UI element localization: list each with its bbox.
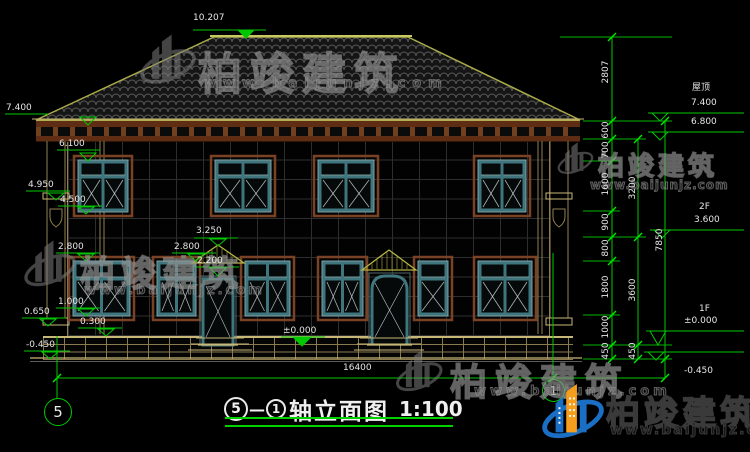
dimension-label: 2.200 — [197, 256, 223, 266]
dimension-label: 600 — [601, 121, 611, 138]
dimension-label: 3.250 — [196, 226, 222, 236]
title-dash: — — [249, 400, 265, 419]
title-axis-end: 1 — [266, 399, 286, 419]
watermark-url: www.baijunjz.com — [204, 76, 449, 91]
dimension-label: 3.600 — [694, 215, 720, 225]
dimension-label: 2807 — [601, 61, 611, 84]
axis-bubble-5: 5 — [44, 398, 72, 426]
dimension-label: 3200 — [628, 177, 638, 200]
dimension-label: 7850 — [655, 229, 665, 252]
dimension-label: ±0.000 — [283, 326, 316, 336]
dimension-label: 2.800 — [58, 242, 84, 252]
dimension-label: 900 — [601, 213, 611, 230]
dimension-label: 0.650 — [24, 307, 50, 317]
dimension-label: 3600 — [628, 279, 638, 302]
dimension-label: 10.207 — [193, 13, 225, 23]
dimension-label: 450 — [601, 342, 611, 359]
watermark-url: www.baijunjz.com — [84, 283, 265, 298]
dimension-label: 1600 — [601, 173, 611, 196]
dimension-label: 2.800 — [174, 242, 200, 252]
watermark-logo — [394, 348, 446, 398]
dimension-label: 1F — [699, 304, 710, 314]
dimension-label: -0.450 — [26, 340, 55, 350]
brand-url: www.baijunjz.com — [610, 422, 750, 438]
dimension-label: 1000 — [601, 316, 611, 339]
dimension-label: 450 — [628, 342, 638, 359]
dimension-label: 2F — [699, 202, 710, 212]
watermark-logo — [556, 140, 596, 180]
dimension-label: 4.950 — [28, 180, 54, 190]
watermark-logo — [138, 32, 200, 92]
dimension-label: -0.450 — [684, 366, 713, 376]
dimension-label: ±0.000 — [684, 316, 717, 326]
dimension-label: 屋顶 — [692, 83, 710, 93]
dimension-label: 6.800 — [691, 117, 717, 127]
cad-elevation-drawing: 柏竣建筑 www.baijunjz.com 柏竣建筑 www.baijunjz.… — [0, 0, 750, 452]
dimension-label: 7.400 — [6, 103, 32, 113]
dimension-label: 700 — [601, 141, 611, 158]
watermark-brand: 柏竣建筑 — [198, 38, 406, 102]
dimension-label: 1.000 — [58, 297, 84, 307]
title-underline — [225, 417, 453, 427]
dimension-label: 16400 — [343, 363, 372, 373]
dimension-label: 0.300 — [80, 317, 106, 327]
dimension-label: 800 — [601, 239, 611, 256]
dimension-label: 7.400 — [691, 98, 717, 108]
dimension-label: 1800 — [601, 276, 611, 299]
dimension-label: 4.500 — [60, 195, 86, 205]
baijun-logo — [540, 382, 608, 446]
dimension-label: 6.100 — [59, 139, 85, 149]
